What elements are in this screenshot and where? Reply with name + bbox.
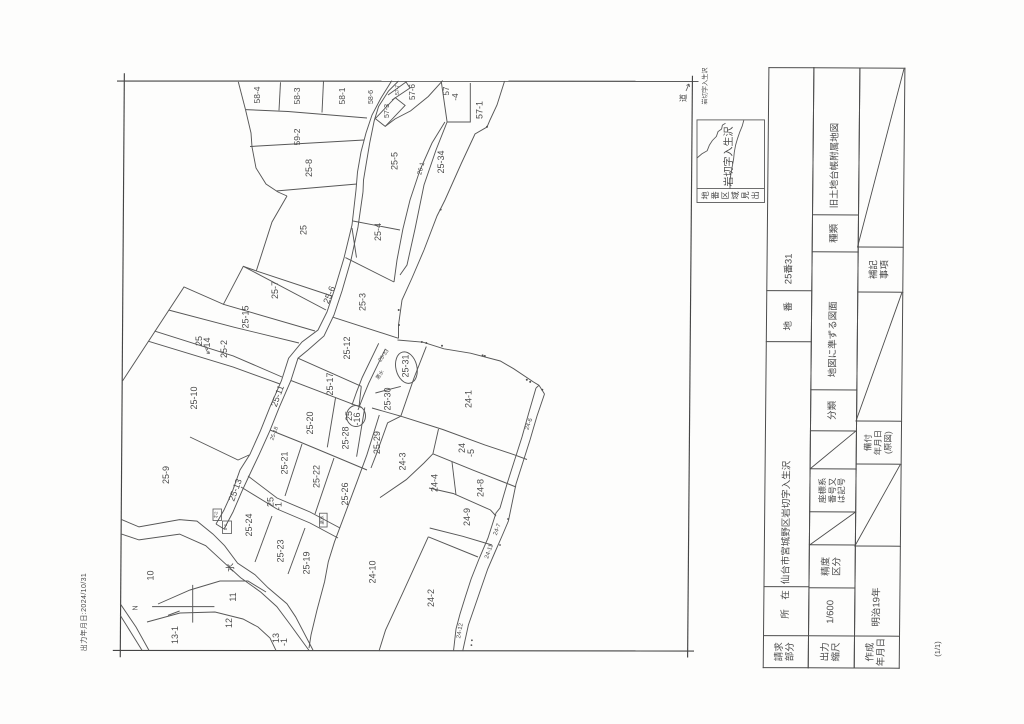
svg-text:25-11: 25-11 <box>269 384 286 408</box>
svg-text:25-31: 25-31 <box>400 354 410 377</box>
svg-text:悪水: 悪水 <box>318 515 324 524</box>
svg-text:25-2: 25-2 <box>219 340 229 358</box>
svg-text:5-1: 5-1 <box>223 523 228 530</box>
svg-text:25-26: 25-26 <box>340 482 350 505</box>
svg-text:25-3: 25-3 <box>357 293 367 311</box>
svg-text:-5: -5 <box>466 449 476 457</box>
svg-text:岩切字入生沢: 岩切字入生沢 <box>701 67 709 105</box>
svg-text:57-3: 57-3 <box>384 104 391 118</box>
svg-text:58-3: 58-3 <box>292 87 302 104</box>
svg-text:24-3: 24-3 <box>397 452 407 470</box>
svg-text:区: 区 <box>721 191 730 199</box>
svg-text:25-7: 25-7 <box>270 281 280 299</box>
svg-text:見: 見 <box>741 191 750 199</box>
svg-text:25-8: 25-8 <box>304 159 314 177</box>
svg-text:25-22: 25-22 <box>312 465 322 488</box>
svg-text:-1: -1 <box>273 502 283 510</box>
svg-text:25-5: 25-5 <box>389 152 399 170</box>
svg-text:24-7: 24-7 <box>493 522 503 536</box>
svg-text:-14: -14 <box>202 337 212 350</box>
svg-text:24-8: 24-8 <box>476 479 486 497</box>
svg-text:-1: -1 <box>279 638 289 646</box>
svg-text:25: 25 <box>299 225 309 235</box>
svg-text:25-9: 25-9 <box>161 466 171 484</box>
svg-text:悪水: 悪水 <box>374 369 385 381</box>
svg-text:25-17: 25-17 <box>325 372 335 395</box>
svg-text:24-4: 24-4 <box>430 474 440 492</box>
svg-text:岩切字入生沢: 岩切字入生沢 <box>722 127 735 187</box>
svg-text:域: 域 <box>730 191 740 199</box>
svg-text:11: 11 <box>228 592 238 601</box>
svg-text:57: 57 <box>442 86 451 95</box>
svg-text:-4: -4 <box>451 93 460 101</box>
svg-text:25-34: 25-34 <box>436 150 446 173</box>
svg-text:25-33: 25-33 <box>377 348 390 363</box>
svg-text:57-6: 57-6 <box>408 83 417 100</box>
svg-text:24-9: 24-9 <box>462 508 472 526</box>
svg-text:24-1: 24-1 <box>464 390 474 408</box>
svg-text:25-20: 25-20 <box>305 411 315 434</box>
svg-text:58-1: 58-1 <box>337 87 347 104</box>
svg-text:57-1: 57-1 <box>475 101 485 119</box>
svg-text:25-13: 25-13 <box>227 477 244 502</box>
svg-text:出力年月日:2024/10/31: 出力年月日:2024/10/31 <box>79 573 88 651</box>
svg-text:25-6: 25-6 <box>321 285 337 305</box>
svg-text:番: 番 <box>710 191 720 199</box>
svg-text:10: 10 <box>146 570 156 580</box>
svg-text:(1/1): (1/1) <box>933 641 942 657</box>
svg-text:12: 12 <box>224 618 234 628</box>
svg-text:25-28: 25-28 <box>340 426 350 449</box>
svg-text:25-23: 25-23 <box>276 539 286 562</box>
svg-text:N: N <box>133 605 140 610</box>
svg-text:25-19: 25-19 <box>302 551 312 574</box>
svg-text:25-12: 25-12 <box>342 336 352 359</box>
svg-text:25-24: 25-24 <box>244 513 254 536</box>
svg-text:25-15: 25-15 <box>241 305 251 328</box>
svg-text:24-10: 24-10 <box>368 560 378 583</box>
svg-text:25-10: 25-10 <box>189 386 199 409</box>
svg-text:地: 地 <box>700 191 710 199</box>
svg-text:24-2: 24-2 <box>426 589 436 607</box>
svg-text:出: 出 <box>750 191 760 199</box>
svg-text:26-1: 26-1 <box>416 161 426 176</box>
svg-text:道: 道 <box>678 94 688 102</box>
svg-text:57-7: 57-7 <box>395 85 401 95</box>
svg-text:58-6: 58-6 <box>368 90 375 104</box>
svg-text:25-4: 25-4 <box>373 223 383 241</box>
svg-text:25-30: 25-30 <box>383 387 393 410</box>
svg-text:13-1: 13-1 <box>170 626 180 644</box>
svg-text:58-4: 58-4 <box>252 86 262 103</box>
svg-text:59-2: 59-2 <box>292 128 302 145</box>
svg-text:25-29: 25-29 <box>372 431 382 454</box>
svg-text:25-21: 25-21 <box>279 451 289 474</box>
svg-text:-16: -16 <box>352 412 362 425</box>
svg-text:ホ2: ホ2 <box>214 511 219 518</box>
svg-text:24-11: 24-11 <box>484 543 495 560</box>
svg-text:水: 水 <box>224 563 235 572</box>
